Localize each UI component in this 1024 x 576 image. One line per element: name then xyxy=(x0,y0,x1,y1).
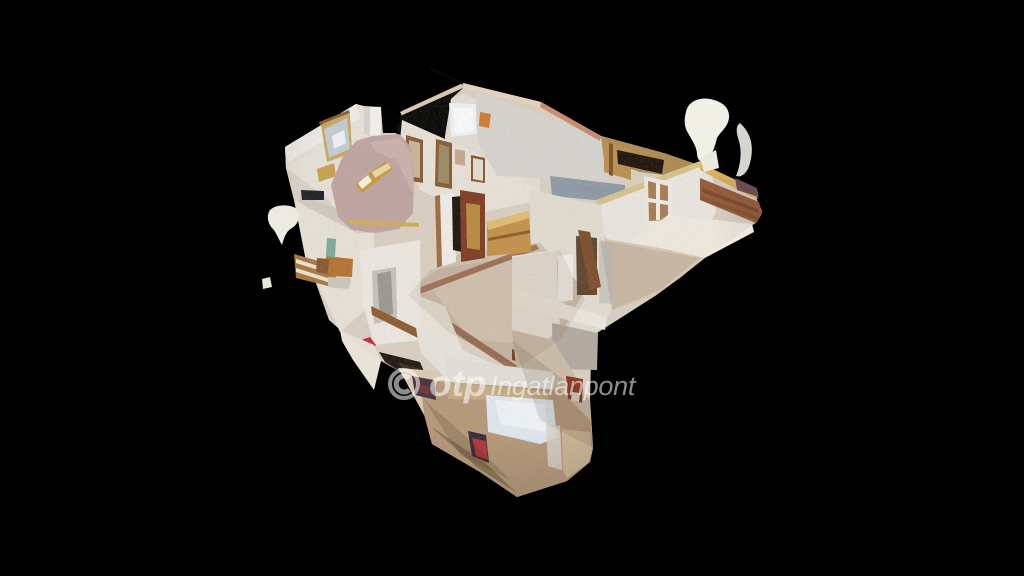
svg-text:otp: otp xyxy=(429,363,487,404)
svg-text:Ingatlanpont: Ingatlanpont xyxy=(490,371,637,401)
